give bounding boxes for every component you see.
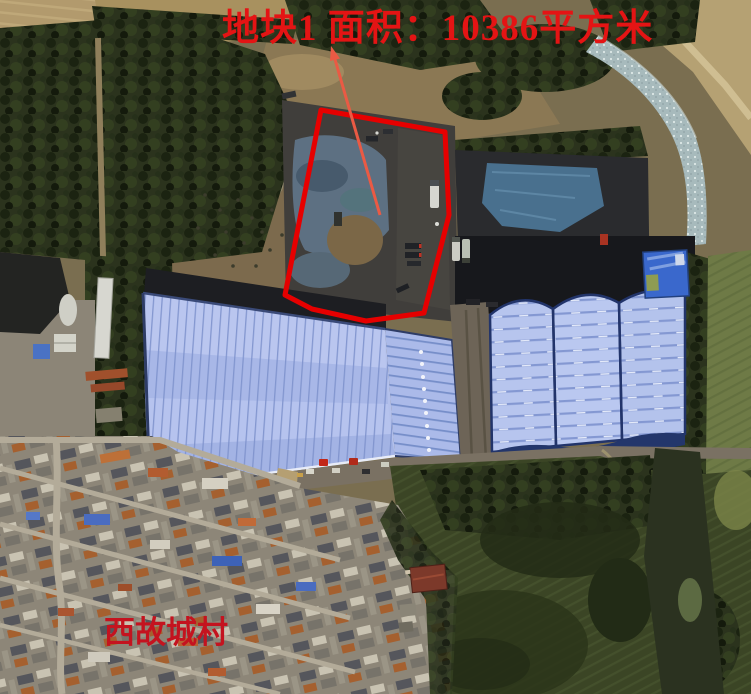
village-name-label: 西故城村 [104,615,228,650]
farm-building [399,603,416,617]
warehouse-c [490,290,685,462]
west-yard [0,252,129,448]
plot-area-label: 地块1 面积：10386平方米 [222,7,653,49]
satellite-map: 地块1 面积：10386平方米 西故城村 [0,0,751,694]
warehouse-b [385,329,461,461]
satellite-scene: 地块1 面积：10386平方米 西故城村 [0,0,751,694]
farm-building [399,621,414,632]
blue-shed [643,250,689,298]
